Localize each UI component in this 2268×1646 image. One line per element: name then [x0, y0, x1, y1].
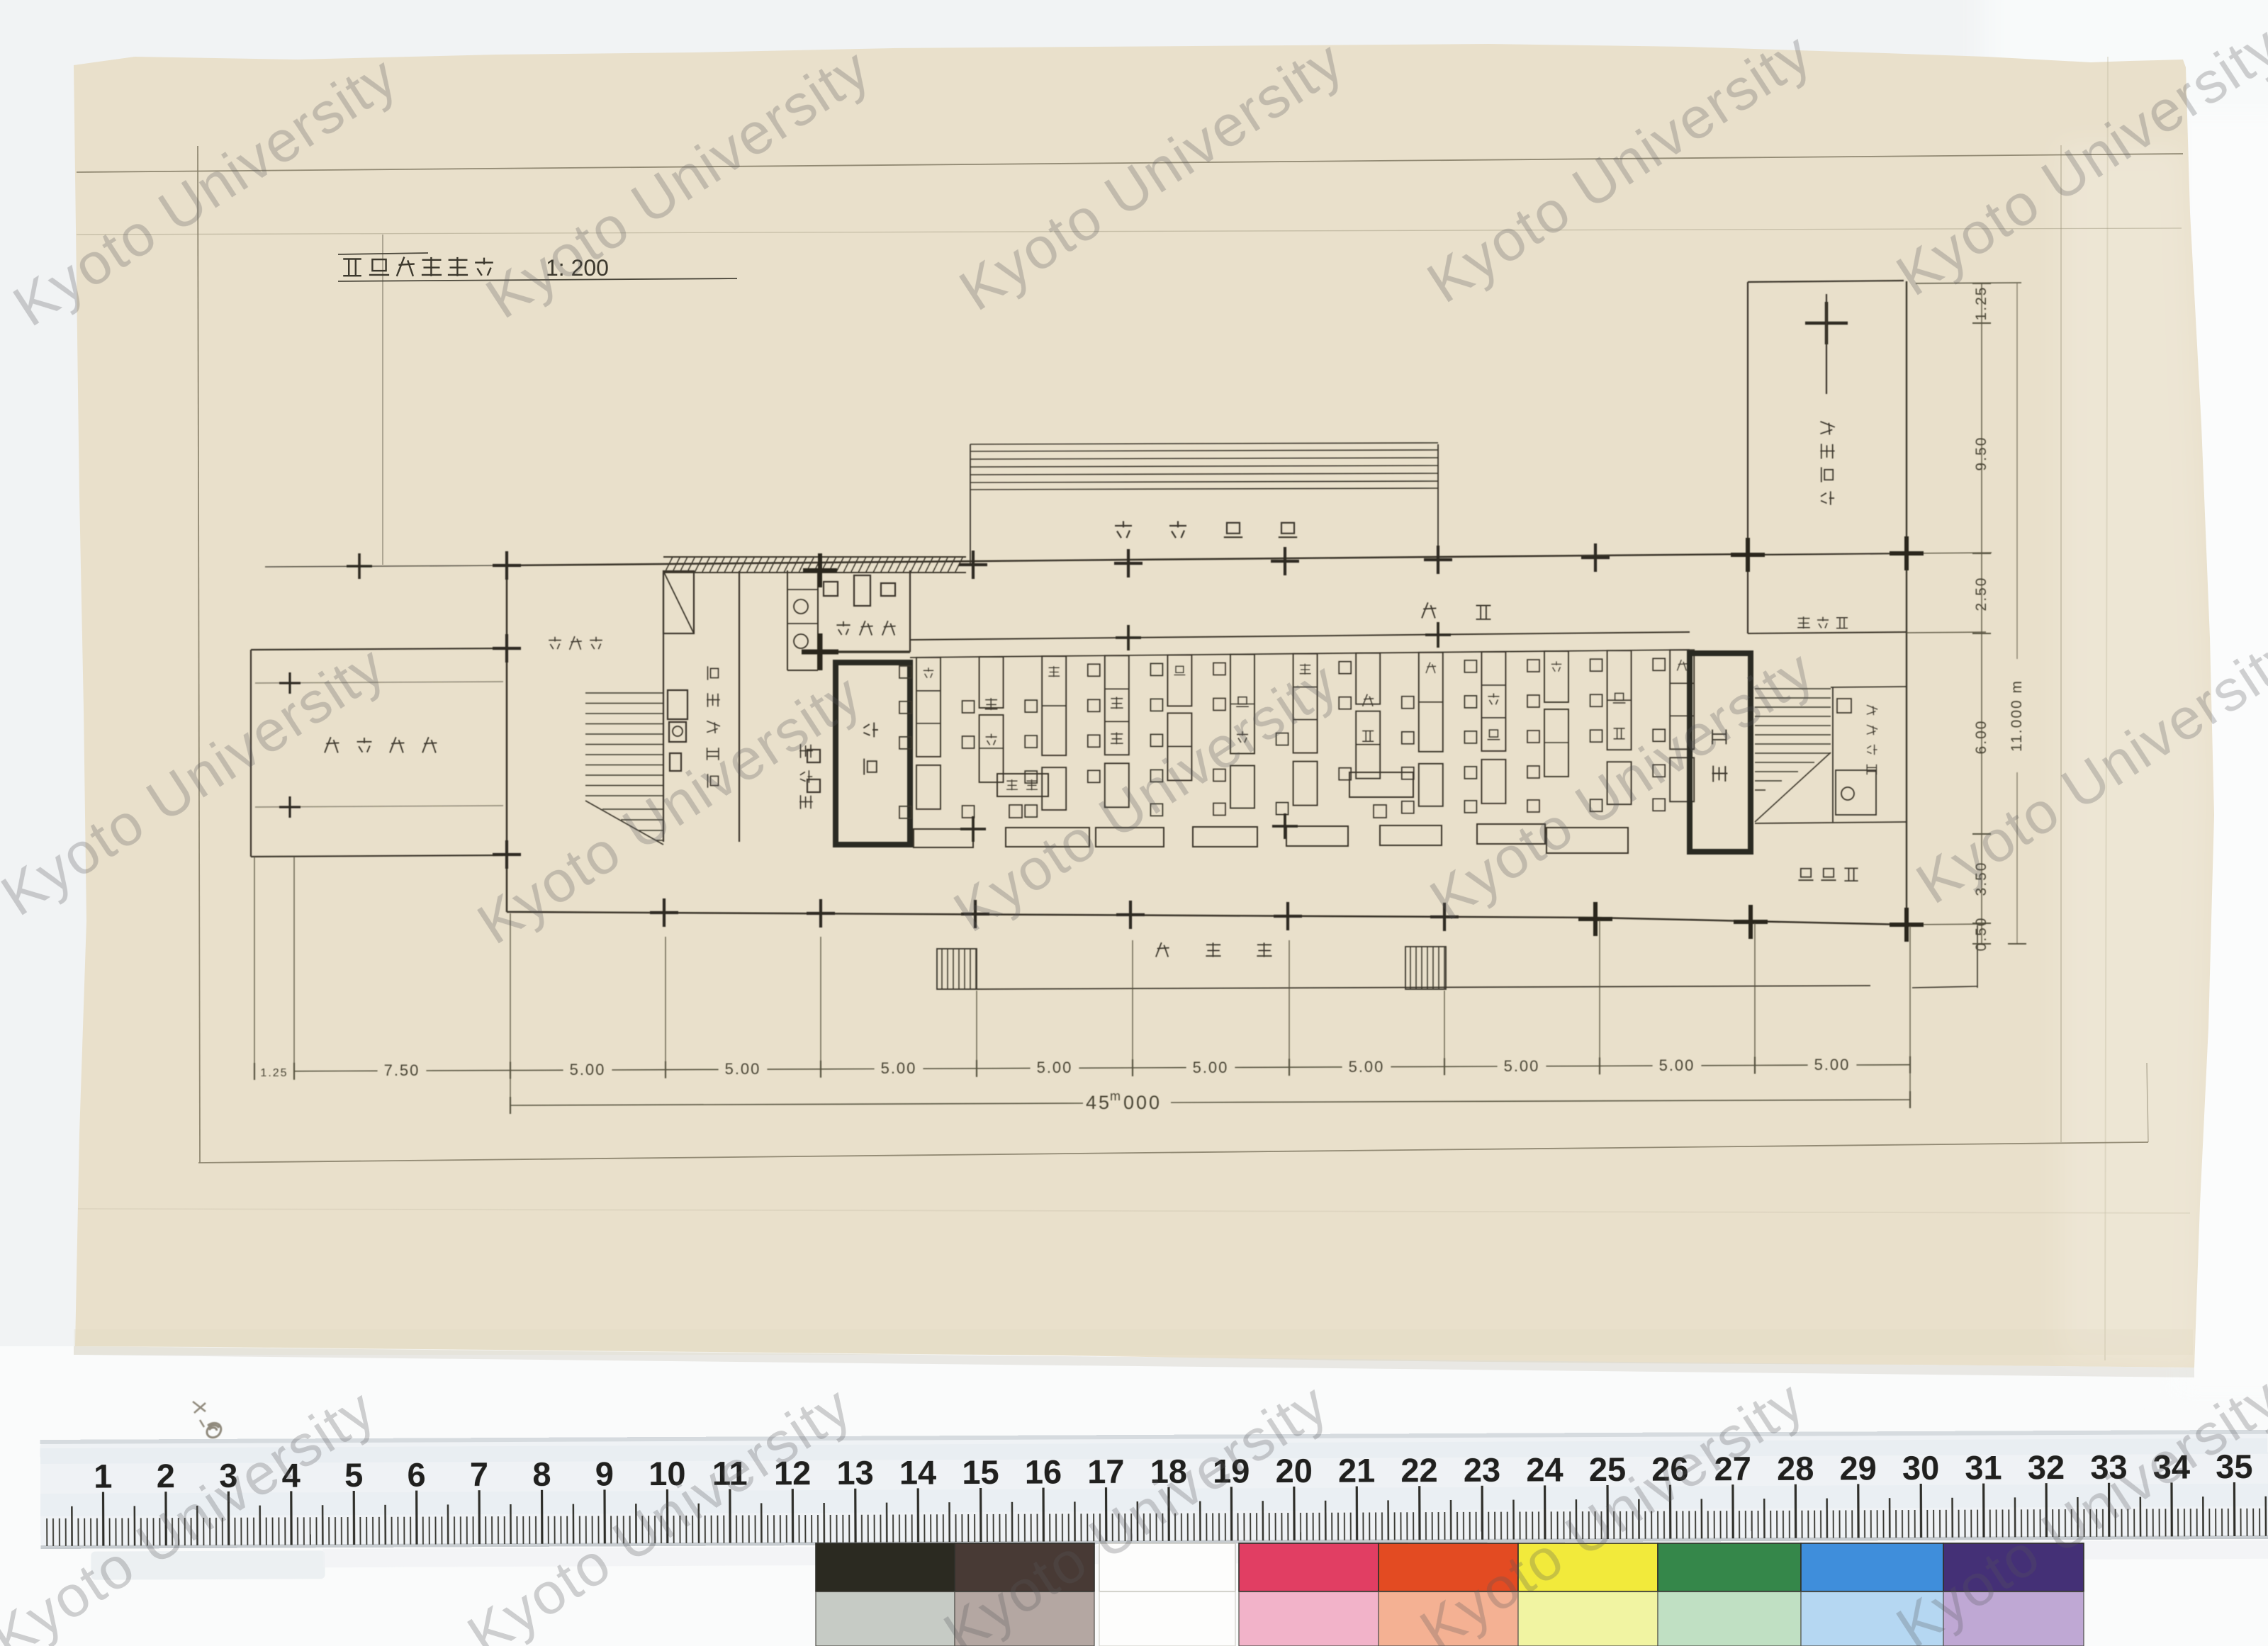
svg-text:2.50: 2.50 [1973, 577, 1989, 611]
svg-text:11.000 m: 11.000 m [2009, 680, 2025, 752]
svg-text:13: 13 [836, 1454, 874, 1492]
svg-text:5.00: 5.00 [725, 1060, 761, 1078]
svg-text:28: 28 [1777, 1450, 1814, 1487]
svg-text:5.00: 5.00 [1504, 1057, 1540, 1075]
svg-text:6.00: 6.00 [1973, 720, 1989, 755]
svg-text:24: 24 [1526, 1450, 1564, 1488]
svg-text:1.25: 1.25 [260, 1067, 288, 1079]
svg-text:14: 14 [899, 1453, 937, 1491]
svg-text:1: 1 [94, 1458, 112, 1495]
svg-text:23: 23 [1464, 1451, 1501, 1489]
svg-text:32: 32 [2028, 1448, 2065, 1486]
svg-text:5: 5 [344, 1456, 363, 1494]
svg-text:31: 31 [1965, 1448, 2002, 1486]
svg-text:000: 000 [1123, 1092, 1162, 1113]
svg-text:17: 17 [1087, 1453, 1125, 1490]
svg-text:45: 45 [1086, 1092, 1111, 1113]
svg-text:1.25: 1.25 [1973, 286, 1989, 321]
svg-text:15: 15 [962, 1453, 999, 1491]
svg-text:5.00: 5.00 [881, 1059, 917, 1077]
svg-text:21: 21 [1338, 1451, 1376, 1489]
svg-text:6: 6 [407, 1456, 425, 1494]
svg-text:29: 29 [1839, 1449, 1877, 1487]
svg-text:5.00: 5.00 [1037, 1059, 1073, 1076]
svg-text:2: 2 [157, 1457, 175, 1494]
svg-text:7.50: 7.50 [384, 1061, 420, 1079]
svg-text:5.00: 5.00 [1659, 1056, 1695, 1074]
svg-text:9: 9 [595, 1455, 614, 1492]
svg-text:0.50: 0.50 [1973, 917, 1989, 952]
svg-text:9.50: 9.50 [1973, 436, 1989, 471]
svg-text:5.00: 5.00 [1193, 1059, 1229, 1076]
svg-text:m: m [1110, 1089, 1121, 1103]
svg-text:22: 22 [1400, 1451, 1438, 1489]
svg-text:5.00: 5.00 [1814, 1056, 1851, 1073]
svg-text:16: 16 [1025, 1453, 1062, 1490]
svg-text:8: 8 [532, 1455, 551, 1493]
svg-text:30: 30 [1902, 1449, 1940, 1487]
svg-text:5.00: 5.00 [1349, 1058, 1385, 1076]
svg-text:7: 7 [470, 1455, 488, 1493]
svg-text:5.00: 5.00 [570, 1061, 606, 1078]
